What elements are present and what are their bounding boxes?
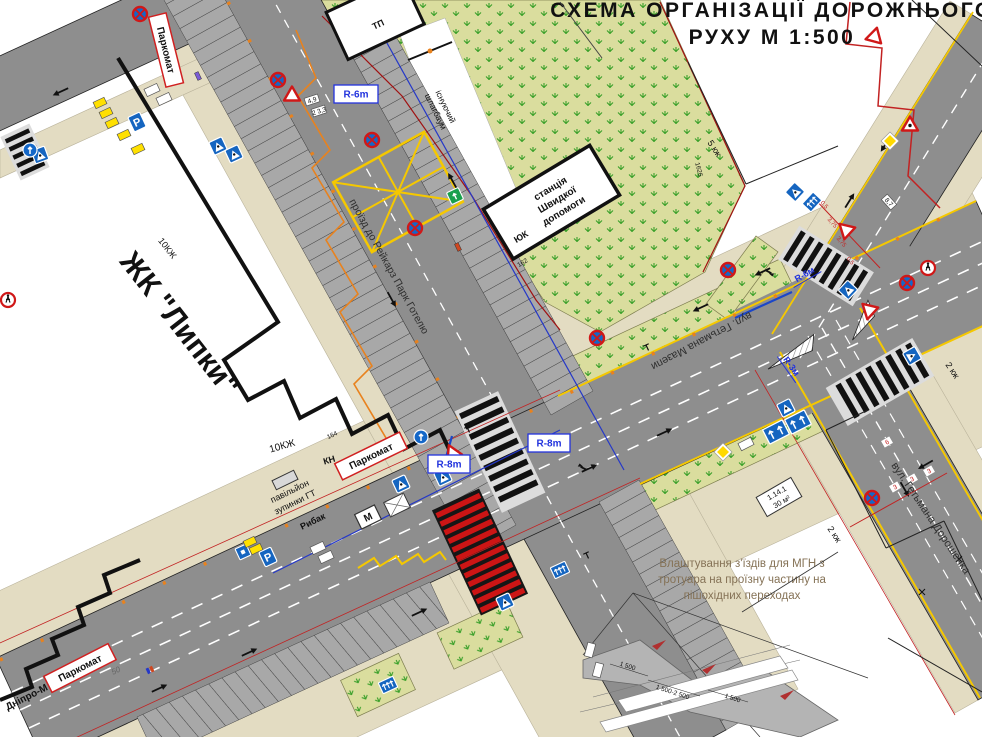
- kzh2-lower-label: 2 кж: [825, 524, 843, 544]
- no-stopping-sign-icon: [133, 7, 147, 21]
- yield-sign-icon: [866, 26, 885, 44]
- radius-r8m-west: R-8m: [428, 455, 470, 473]
- lypky-label: ЖК "Липки": [113, 245, 246, 403]
- no-pedestrians-sign-icon: [921, 261, 935, 275]
- mandatory-direction-sign-icon: [414, 430, 428, 444]
- no-pedestrians-sign-icon: [1, 293, 15, 307]
- no-stopping-sign-icon: [590, 331, 604, 345]
- radius-r8m-center: R-8m: [528, 434, 570, 452]
- kzh10-upper-label: 10КЖ: [156, 236, 179, 261]
- yellow-plate-icon: [131, 143, 145, 154]
- note-line-2: тротуара на проїзну частину на: [658, 574, 826, 586]
- barrier-post: [428, 49, 433, 54]
- kzh10-lower-label: 10КЖ: [268, 437, 297, 455]
- note-line-3: пішохідних переходах: [684, 590, 801, 602]
- svg-text:R-6m: R-6m: [343, 90, 368, 101]
- no-stopping-sign-icon: [271, 73, 285, 87]
- mandatory-direction-sign-icon: [23, 143, 37, 157]
- note-line-1: Влаштування з'їздів для МГН з: [659, 558, 824, 570]
- radius-r6m-top: R-6m: [334, 85, 378, 103]
- no-stopping-sign-icon: [721, 263, 735, 277]
- no-stopping-sign-icon: [408, 221, 422, 235]
- no-stopping-sign-icon: [900, 276, 914, 290]
- title-line-1: СХЕМА ОРГАНІЗАЦІЇ ДОРОЖНЬОГО: [550, 0, 982, 22]
- no-stopping-sign-icon: [865, 491, 879, 505]
- svg-text:R-8m: R-8m: [536, 439, 561, 450]
- svg-text:R-8m: R-8m: [436, 460, 461, 471]
- no-stopping-sign-icon: [365, 133, 379, 147]
- title-line-2: РУХУ М 1:500: [689, 26, 856, 49]
- pedestrian-crossing-sign-icon: [785, 182, 805, 202]
- traffic-scheme-drawing: ТП станція Швидкої допомоги ЮК 162: [0, 0, 982, 737]
- scheme-canvas: ТП станція Швидкої допомоги ЮК 162: [0, 0, 982, 737]
- yellow-plate-icon: [117, 129, 131, 140]
